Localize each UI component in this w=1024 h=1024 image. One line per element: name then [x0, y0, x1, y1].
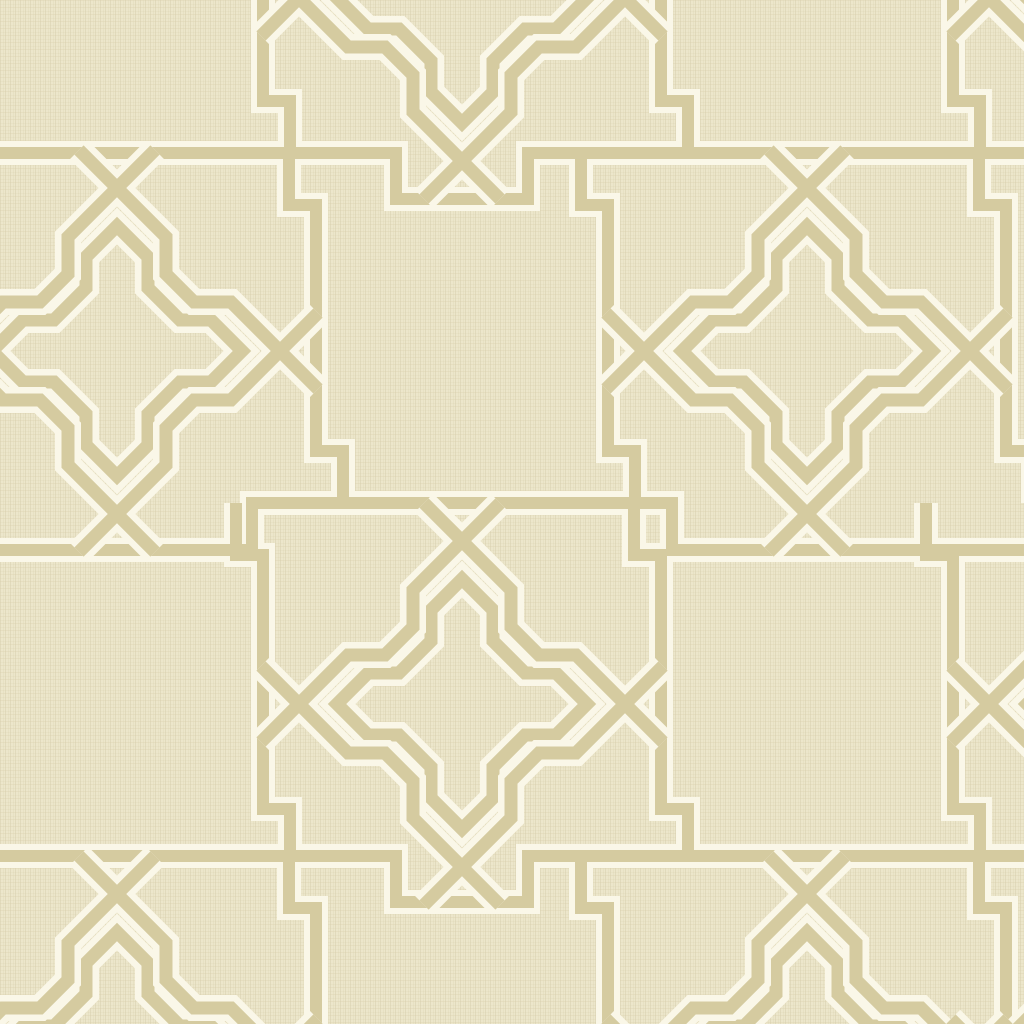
wallpaper-swatch	[0, 0, 1024, 1024]
wallpaper-pattern-image	[0, 0, 1024, 1024]
